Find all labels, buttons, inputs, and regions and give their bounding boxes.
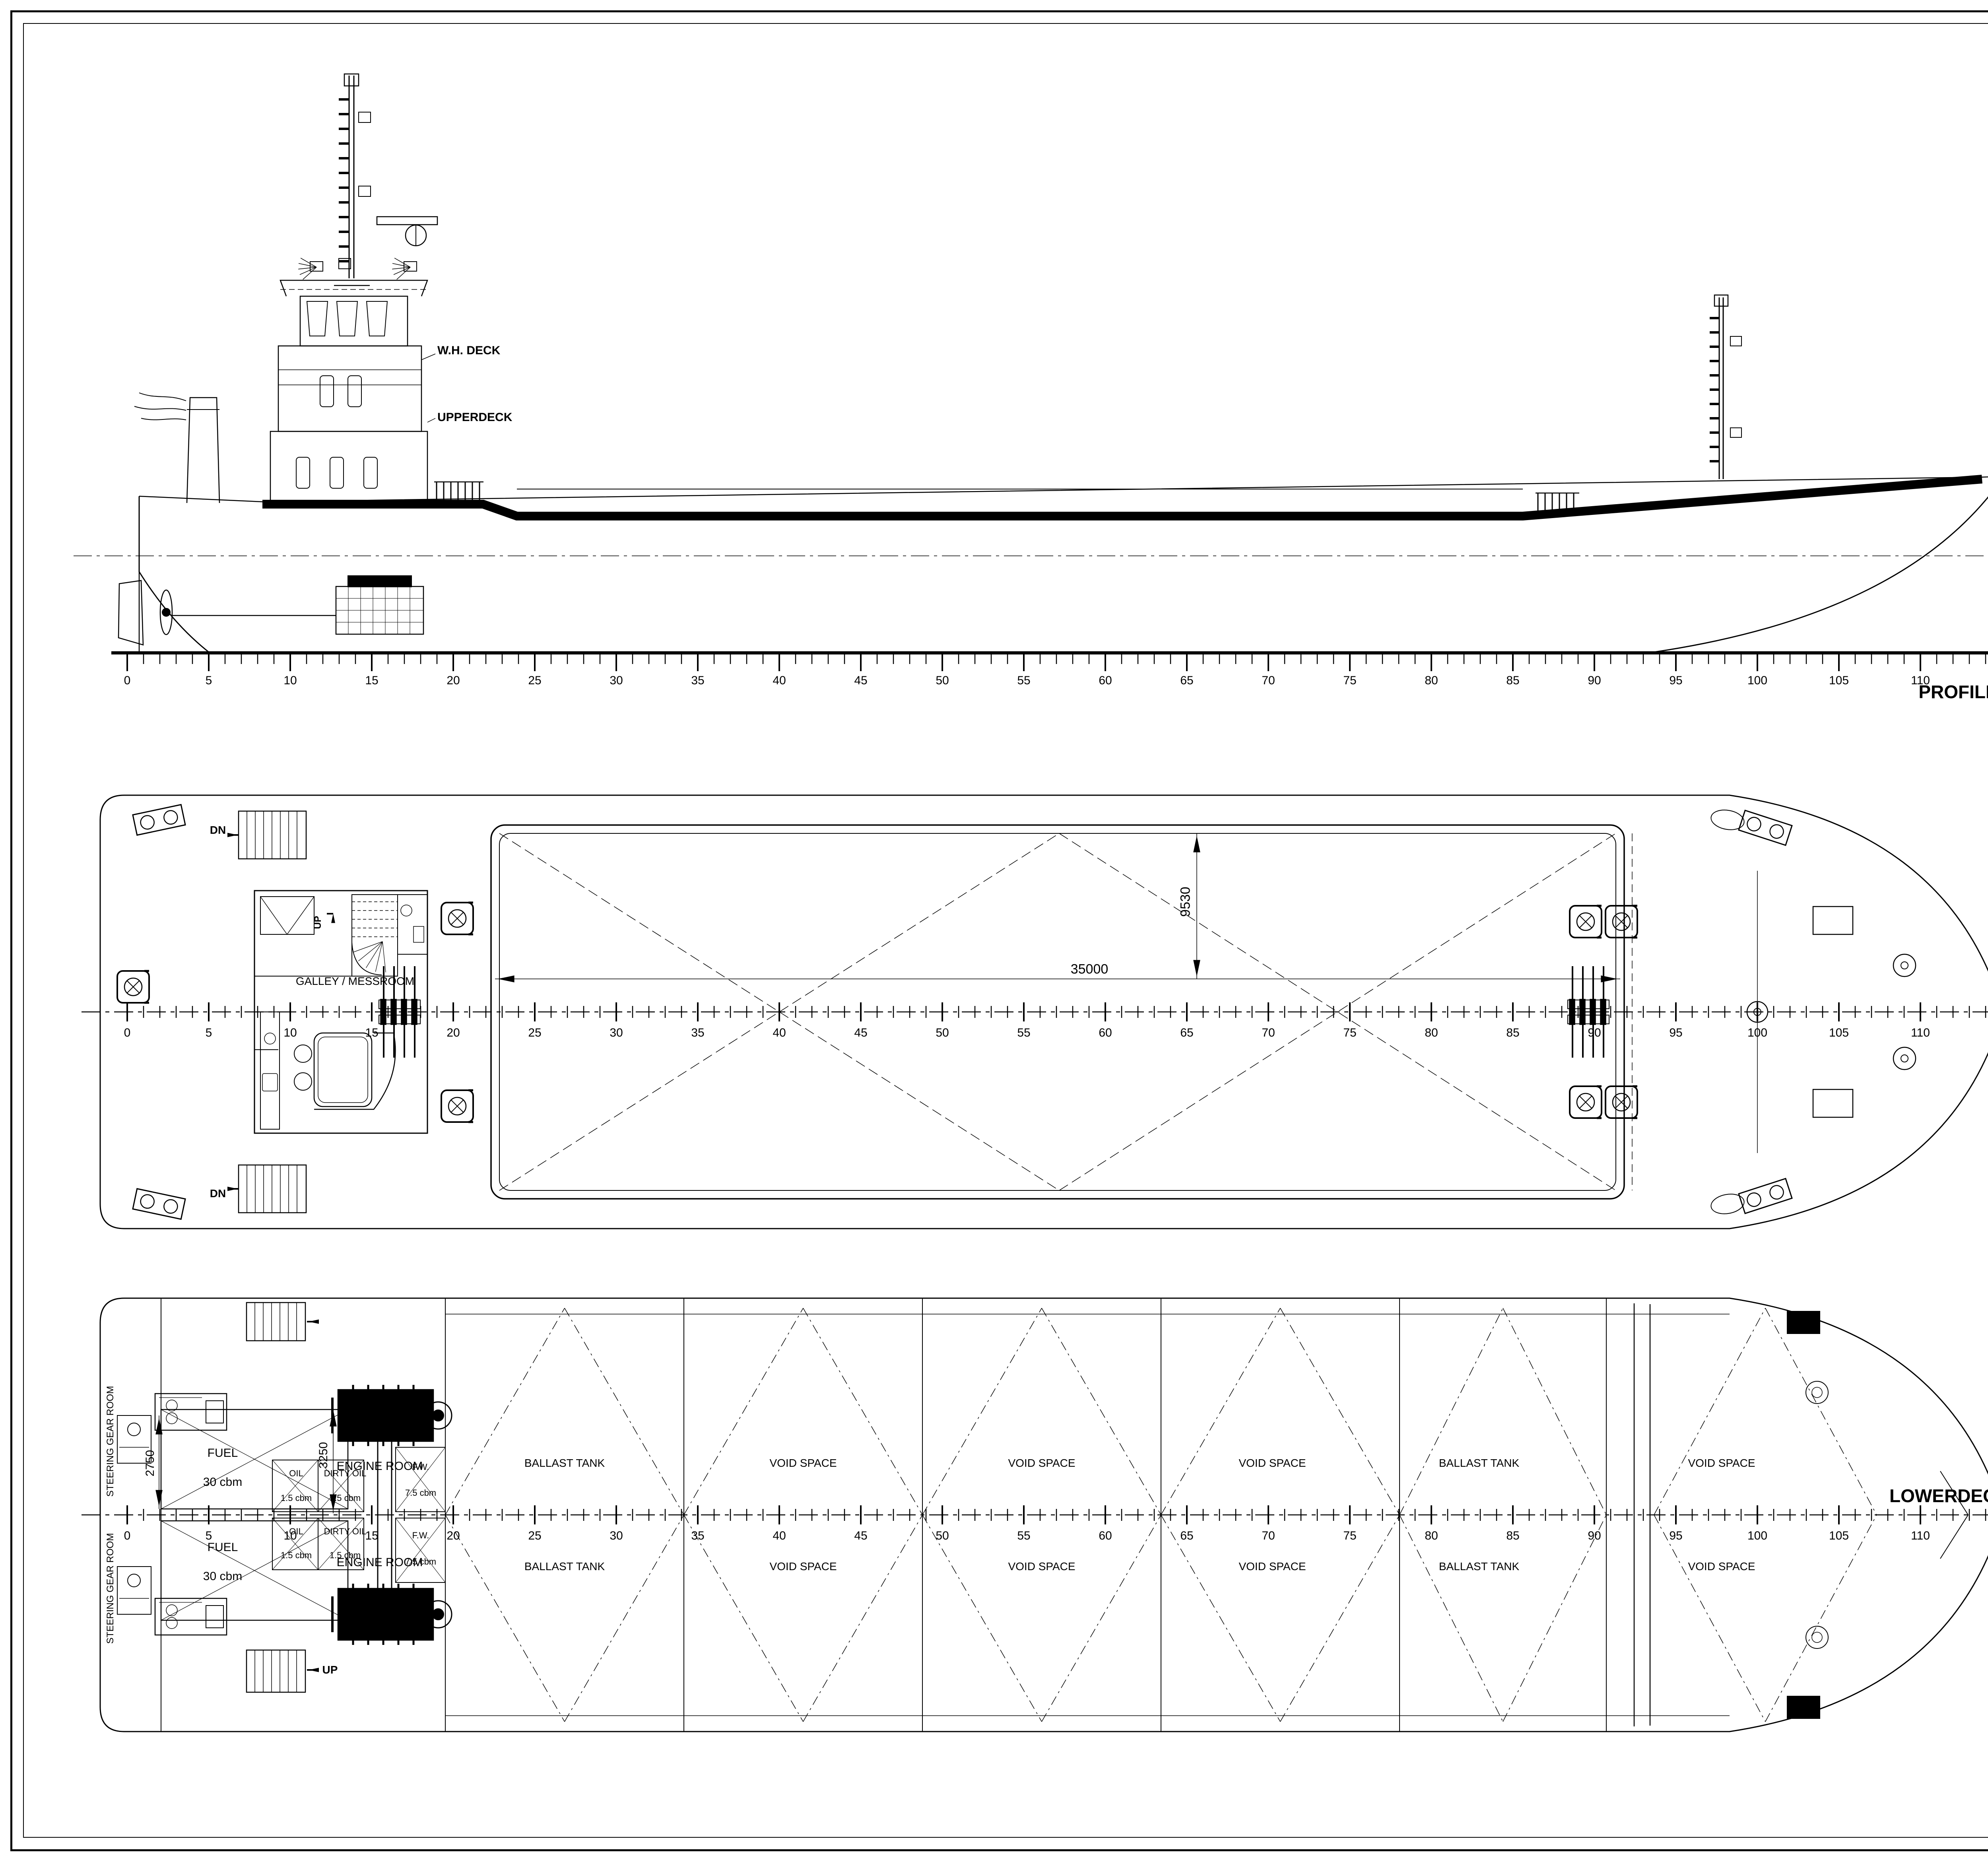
frame-number: 80 [1425,1026,1438,1040]
frame-number: 80 [1425,674,1438,687]
frame-number: 30 [610,674,623,687]
oil-label: OIL [289,1468,303,1479]
compartment-label: BALLAST TANK [1439,1560,1519,1573]
galley-messroom-label: GALLEY / MESSROOM [296,975,414,988]
dirty-oil-vol: 1.5 cbm [330,1550,361,1561]
frame-number: 90 [1588,1529,1601,1543]
frame-number: 30 [610,1529,623,1543]
frame-number: 60 [1099,1529,1112,1543]
frame-number: 90 [1588,674,1601,687]
frame-number: 95 [1669,1529,1682,1543]
frame-number: 105 [1829,1026,1849,1040]
maindeck-dn-label: DN [210,1187,226,1200]
frame-number: 55 [1017,1529,1030,1543]
frame-number: 75 [1343,1026,1356,1040]
frame-number: 25 [528,1529,541,1543]
frame-number: 85 [1506,1529,1519,1543]
frame-number: 95 [1669,674,1682,687]
maindeck-dn-label: DN [210,824,226,837]
lowerdeck-up-label: UP [322,1664,338,1676]
frame-number: 5 [206,674,212,687]
aft-tank-dim: 2750 [144,1450,157,1477]
frame-number: 70 [1262,1529,1275,1543]
frame-number: 100 [1747,674,1767,687]
oil-vol: 1.5 cbm [281,1550,312,1561]
frame-number: 95 [1669,1026,1682,1040]
hopper-width-dim: 9530 [1178,887,1194,917]
frame-number: 45 [854,1529,867,1543]
compartment-label: BALLAST TANK [524,1457,605,1470]
dirty-oil-vol: 1.5 cbm [330,1493,361,1503]
frame-number: 110 [1911,1529,1930,1543]
fuel-vol: 30 cbm [203,1476,242,1489]
frame-number: 0 [124,1529,131,1543]
frame-number: 40 [773,674,786,687]
profile-upperdeck-label: UPPERDECK [437,411,512,424]
frame-number: 35 [691,674,704,687]
steering-gear-room-label: STEERING GEAR ROOM [105,1386,116,1497]
fw-label: F.W. [412,1530,429,1541]
frame-number: 25 [528,674,541,687]
frame-number: 20 [447,1529,460,1543]
compartment-label: VOID SPACE [1688,1560,1755,1573]
frame-number: 75 [1343,1529,1356,1543]
frame-number: 100 [1747,1529,1767,1543]
compartment-label: VOID SPACE [769,1457,837,1470]
frame-number: 40 [773,1529,786,1543]
compartment-label: VOID SPACE [769,1560,837,1573]
fuel-vol: 30 cbm [203,1570,242,1583]
fuel-label: FUEL [208,1541,238,1554]
frame-number: 5 [206,1529,212,1543]
frame-number: 50 [936,1529,949,1543]
frame-number: 10 [283,1529,297,1543]
frame-number: 35 [691,1026,704,1040]
hopper-length-dim: 35000 [1071,962,1109,977]
fw-vol: 7.5 cbm [405,1488,436,1498]
frame-number: 60 [1099,674,1112,687]
compartment-label: VOID SPACE [1688,1457,1755,1470]
frame-number: 10 [283,674,297,687]
frame-number: 80 [1425,1529,1438,1543]
compartment-label: BALLAST TANK [1439,1457,1519,1470]
fw-label: F.W. [412,1462,429,1472]
frame-number: 15 [365,1026,378,1040]
compartment-label: VOID SPACE [1008,1560,1075,1573]
frame-number: 65 [1180,1529,1193,1543]
frame-number: 20 [447,674,460,687]
frame-number: 35 [691,1529,704,1543]
frame-number: 50 [936,1026,949,1040]
frame-number: 45 [854,1026,867,1040]
er-dim: 3250 [317,1442,330,1469]
lowerdeck-label: LOWERDECK [1889,1485,1988,1507]
profile-whdeck-label: W.H. DECK [437,344,500,357]
compartment-label: BALLAST TANK [524,1560,605,1573]
compartment-label: VOID SPACE [1008,1457,1075,1470]
frame-number: 90 [1588,1026,1601,1040]
dirty-oil-label: DIRTY OIL [324,1526,367,1537]
oil-vol: 1.5 cbm [281,1493,312,1503]
frame-number: 60 [1099,1026,1112,1040]
frame-number: 5 [206,1026,212,1040]
frame-number: 75 [1343,674,1356,687]
frame-number: 100 [1747,1026,1767,1040]
frame-number: 65 [1180,1026,1193,1040]
frame-number: 85 [1506,1026,1519,1040]
drawing-linework [0,0,1988,1860]
frame-number: 25 [528,1026,541,1040]
frame-number: 55 [1017,674,1030,687]
compartment-label: VOID SPACE [1239,1560,1306,1573]
frame-number: 15 [365,674,378,687]
frame-number: 30 [610,1026,623,1040]
frame-number: 105 [1829,1529,1849,1543]
frame-number: 0 [124,674,131,687]
frame-number: 0 [124,1026,131,1040]
frame-number: 105 [1829,674,1849,687]
maindeck-up-label: UP [313,916,324,929]
frame-number: 110 [1911,1026,1930,1040]
frame-number: 70 [1262,1026,1275,1040]
frame-number: 55 [1017,1026,1030,1040]
frame-number: 40 [773,1026,786,1040]
steering-gear-room-label: STEERING GEAR ROOM [105,1533,116,1644]
compartment-label: VOID SPACE [1239,1457,1306,1470]
fw-vol: 7.5 cbm [405,1557,436,1567]
dirty-oil-label: DIRTY OIL [324,1468,367,1479]
frame-number: 65 [1180,674,1193,687]
frame-number: 20 [447,1026,460,1040]
frame-number: 45 [854,674,867,687]
frame-number: 85 [1506,674,1519,687]
drawing-sheet: W.H. DECK UPPERDECK PROFILE BL BL CL 133… [0,0,1988,1860]
frame-number: 110 [1911,674,1930,687]
frame-number: 10 [283,1026,297,1040]
frame-number: 70 [1262,674,1275,687]
frame-number: 15 [365,1529,378,1543]
frame-number: 50 [936,674,949,687]
fuel-label: FUEL [208,1446,238,1460]
